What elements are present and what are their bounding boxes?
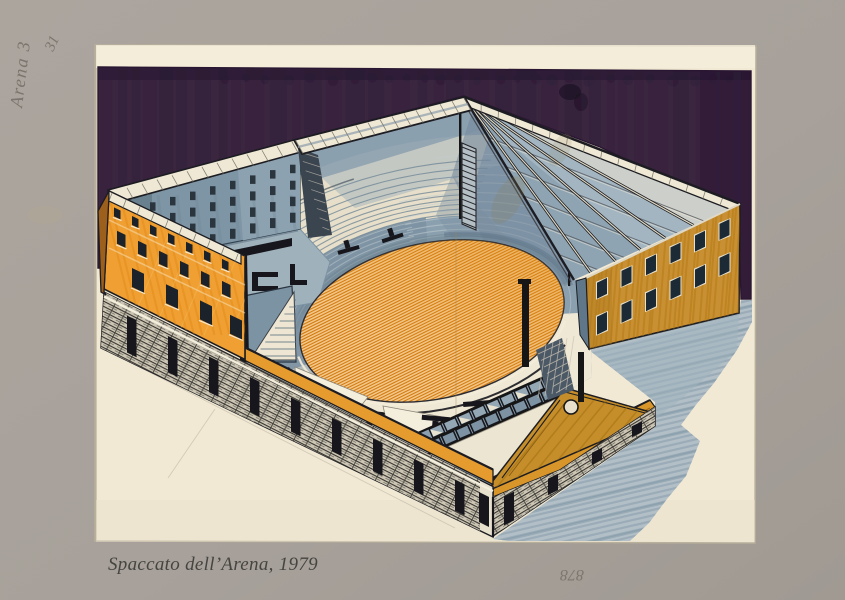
svg-text:878: 878 (560, 566, 584, 583)
svg-text:Spaccato dell’Arena, 1979: Spaccato dell’Arena, 1979 (108, 554, 318, 575)
